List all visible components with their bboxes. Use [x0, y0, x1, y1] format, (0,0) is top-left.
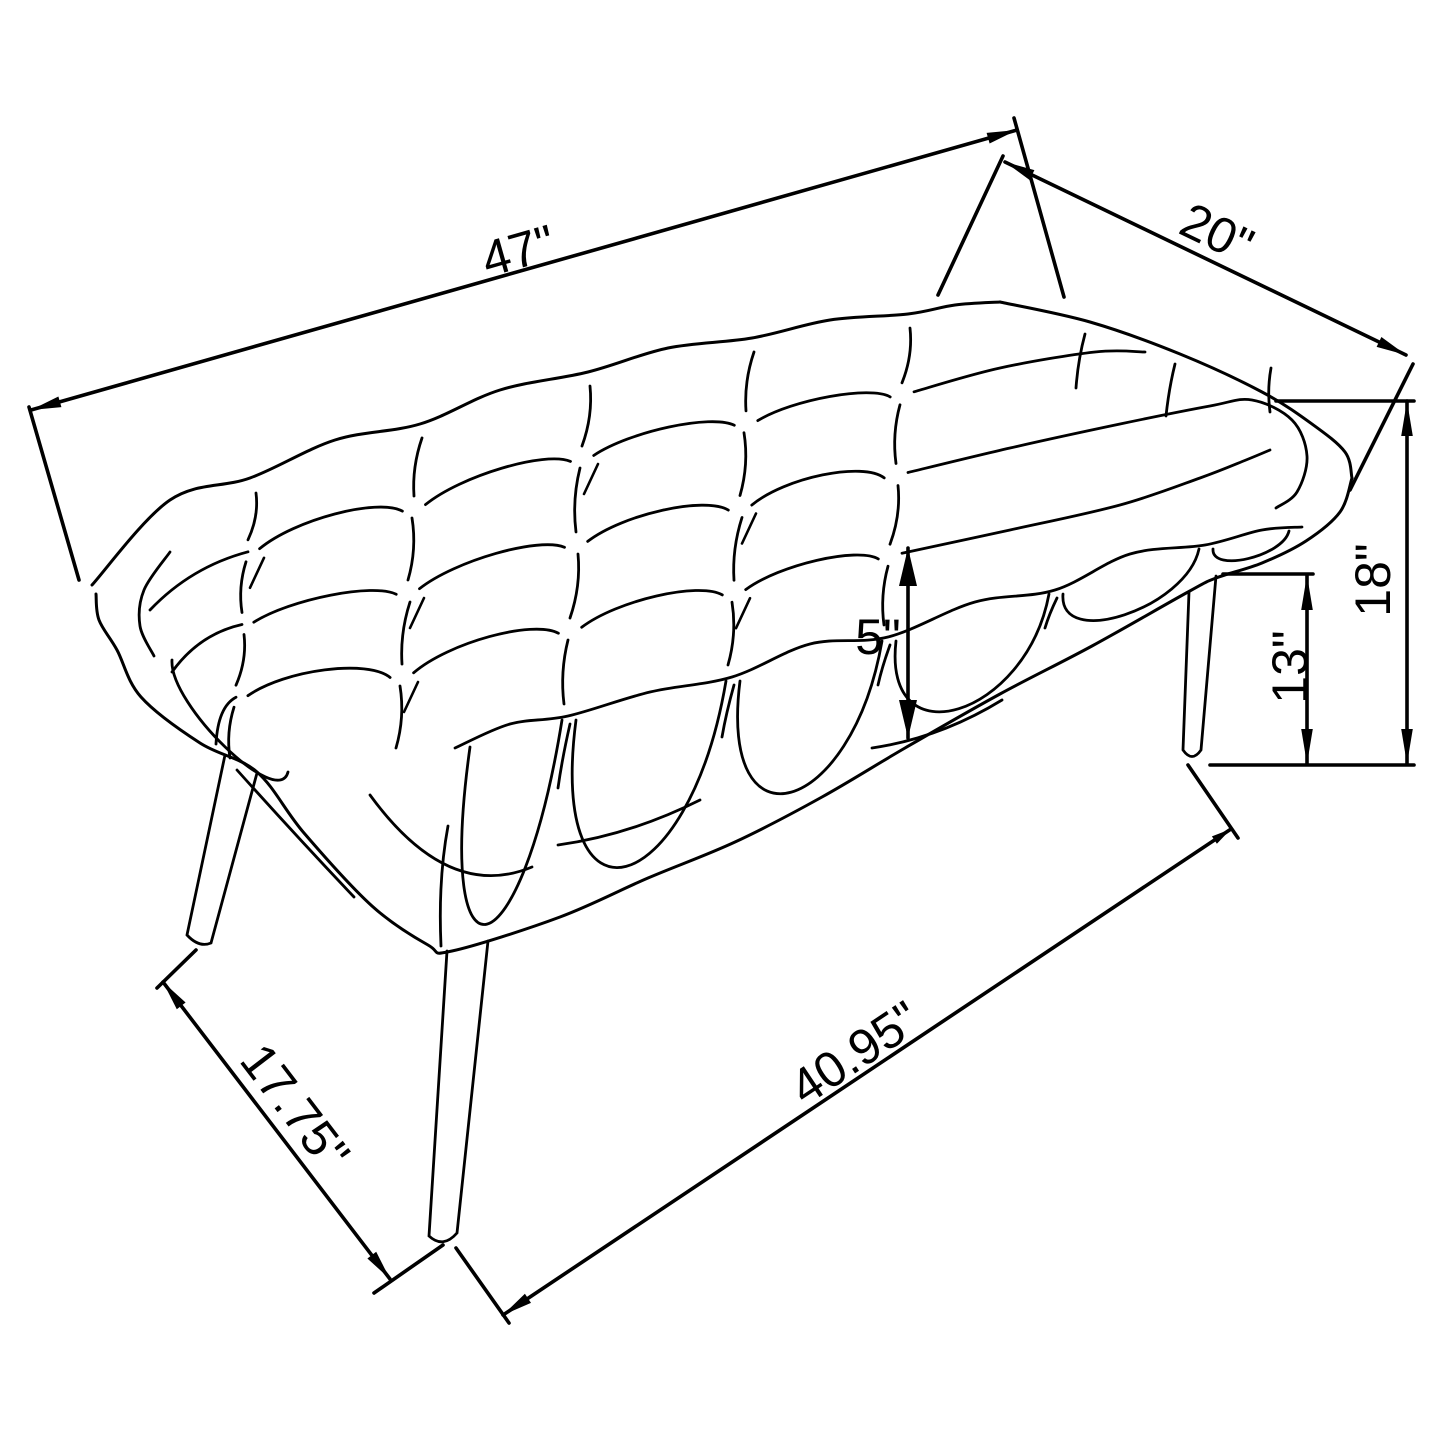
svg-text:47": 47": [475, 214, 561, 288]
svg-text:13": 13": [1262, 630, 1318, 703]
svg-text:20": 20": [1172, 192, 1262, 274]
svg-text:18": 18": [1345, 543, 1401, 616]
svg-text:5": 5": [855, 609, 901, 665]
svg-text:17.75": 17.75": [229, 1033, 360, 1181]
svg-text:40.95": 40.95": [780, 990, 930, 1116]
